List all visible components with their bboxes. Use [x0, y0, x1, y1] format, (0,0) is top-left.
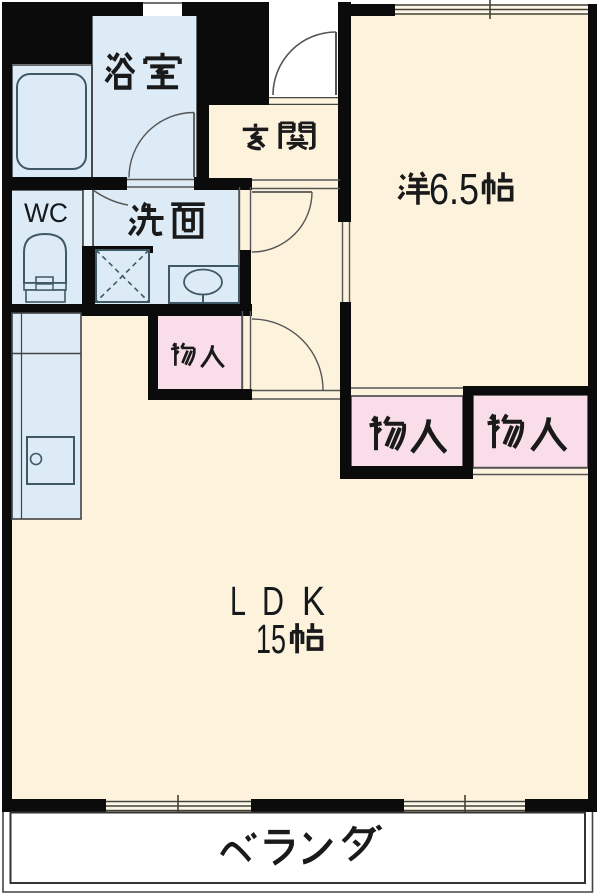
svg-text:L: L [230, 578, 246, 624]
svg-text:15: 15 [256, 616, 286, 662]
svg-text:6.5: 6.5 [429, 165, 479, 214]
svg-text:WC: WC [24, 198, 68, 228]
svg-text:K: K [302, 578, 325, 624]
